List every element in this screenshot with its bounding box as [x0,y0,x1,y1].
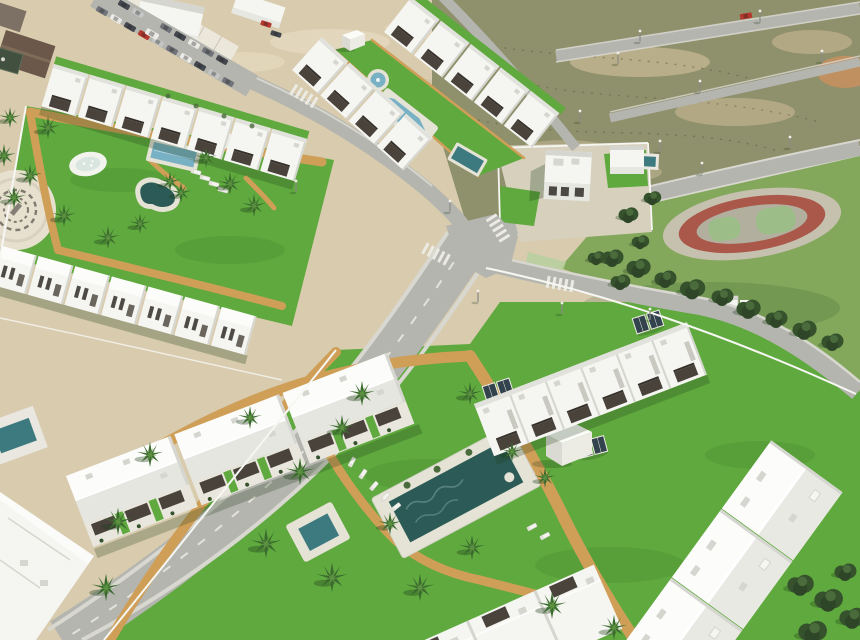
shrub [250,124,255,129]
aerial-render-canvas [0,0,860,640]
shrub [222,114,227,119]
shrub [194,104,199,109]
aerial-render [0,0,860,640]
villa-neighbour [610,146,644,174]
shrub [166,94,171,99]
